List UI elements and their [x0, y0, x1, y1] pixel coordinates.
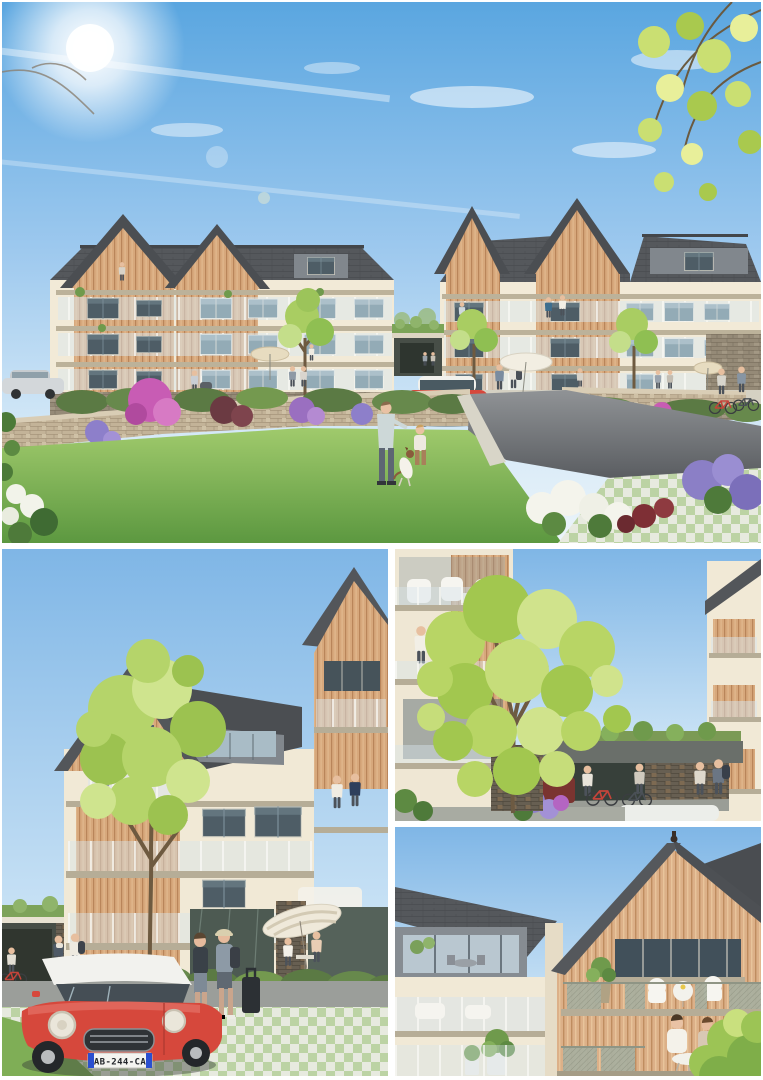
license-plate: AB-244-CA: [88, 1053, 152, 1068]
panel-courtyard: [395, 549, 761, 821]
property-render-collage: AB-244-CA: [0, 0, 763, 1080]
white-car-roof: [619, 805, 719, 821]
panel-entrance: AB-244-CA: [2, 549, 388, 1076]
panel-balconies: [395, 827, 761, 1076]
lawn: [2, 428, 562, 543]
license-plate-text: AB-244-CA: [94, 1058, 147, 1068]
panel-overview: [2, 2, 761, 543]
